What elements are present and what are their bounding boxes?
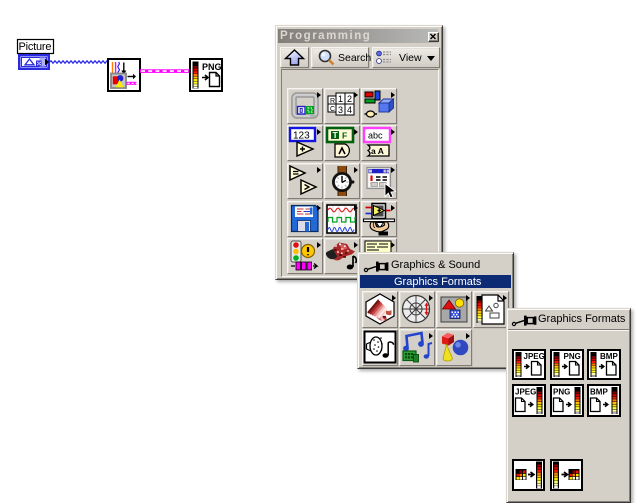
svg-text:F: F	[342, 131, 347, 141]
svg-text:abc: abc	[368, 131, 383, 141]
svg-text:4: 4	[347, 105, 352, 115]
svg-text:JPEG: JPEG	[524, 352, 545, 361]
svg-text:R: R	[330, 98, 335, 105]
svg-text:T: T	[333, 130, 339, 140]
svg-text:C: C	[330, 106, 335, 113]
svg-text:PNG: PNG	[563, 352, 580, 361]
svg-text:2: 2	[347, 94, 352, 104]
svg-text:1: 1	[338, 94, 343, 104]
svg-text:123: 123	[293, 131, 310, 142]
svg-text:PNG: PNG	[553, 388, 570, 397]
svg-text:BMP: BMP	[600, 352, 618, 361]
svg-text:a A: a A	[371, 146, 384, 156]
svg-text:3: 3	[338, 105, 343, 115]
svg-text:BMP: BMP	[590, 388, 608, 397]
svg-text:PNG: PNG	[202, 62, 222, 72]
svg-text:JPEG: JPEG	[515, 388, 536, 397]
svg-text:Picture: Picture	[19, 41, 52, 53]
